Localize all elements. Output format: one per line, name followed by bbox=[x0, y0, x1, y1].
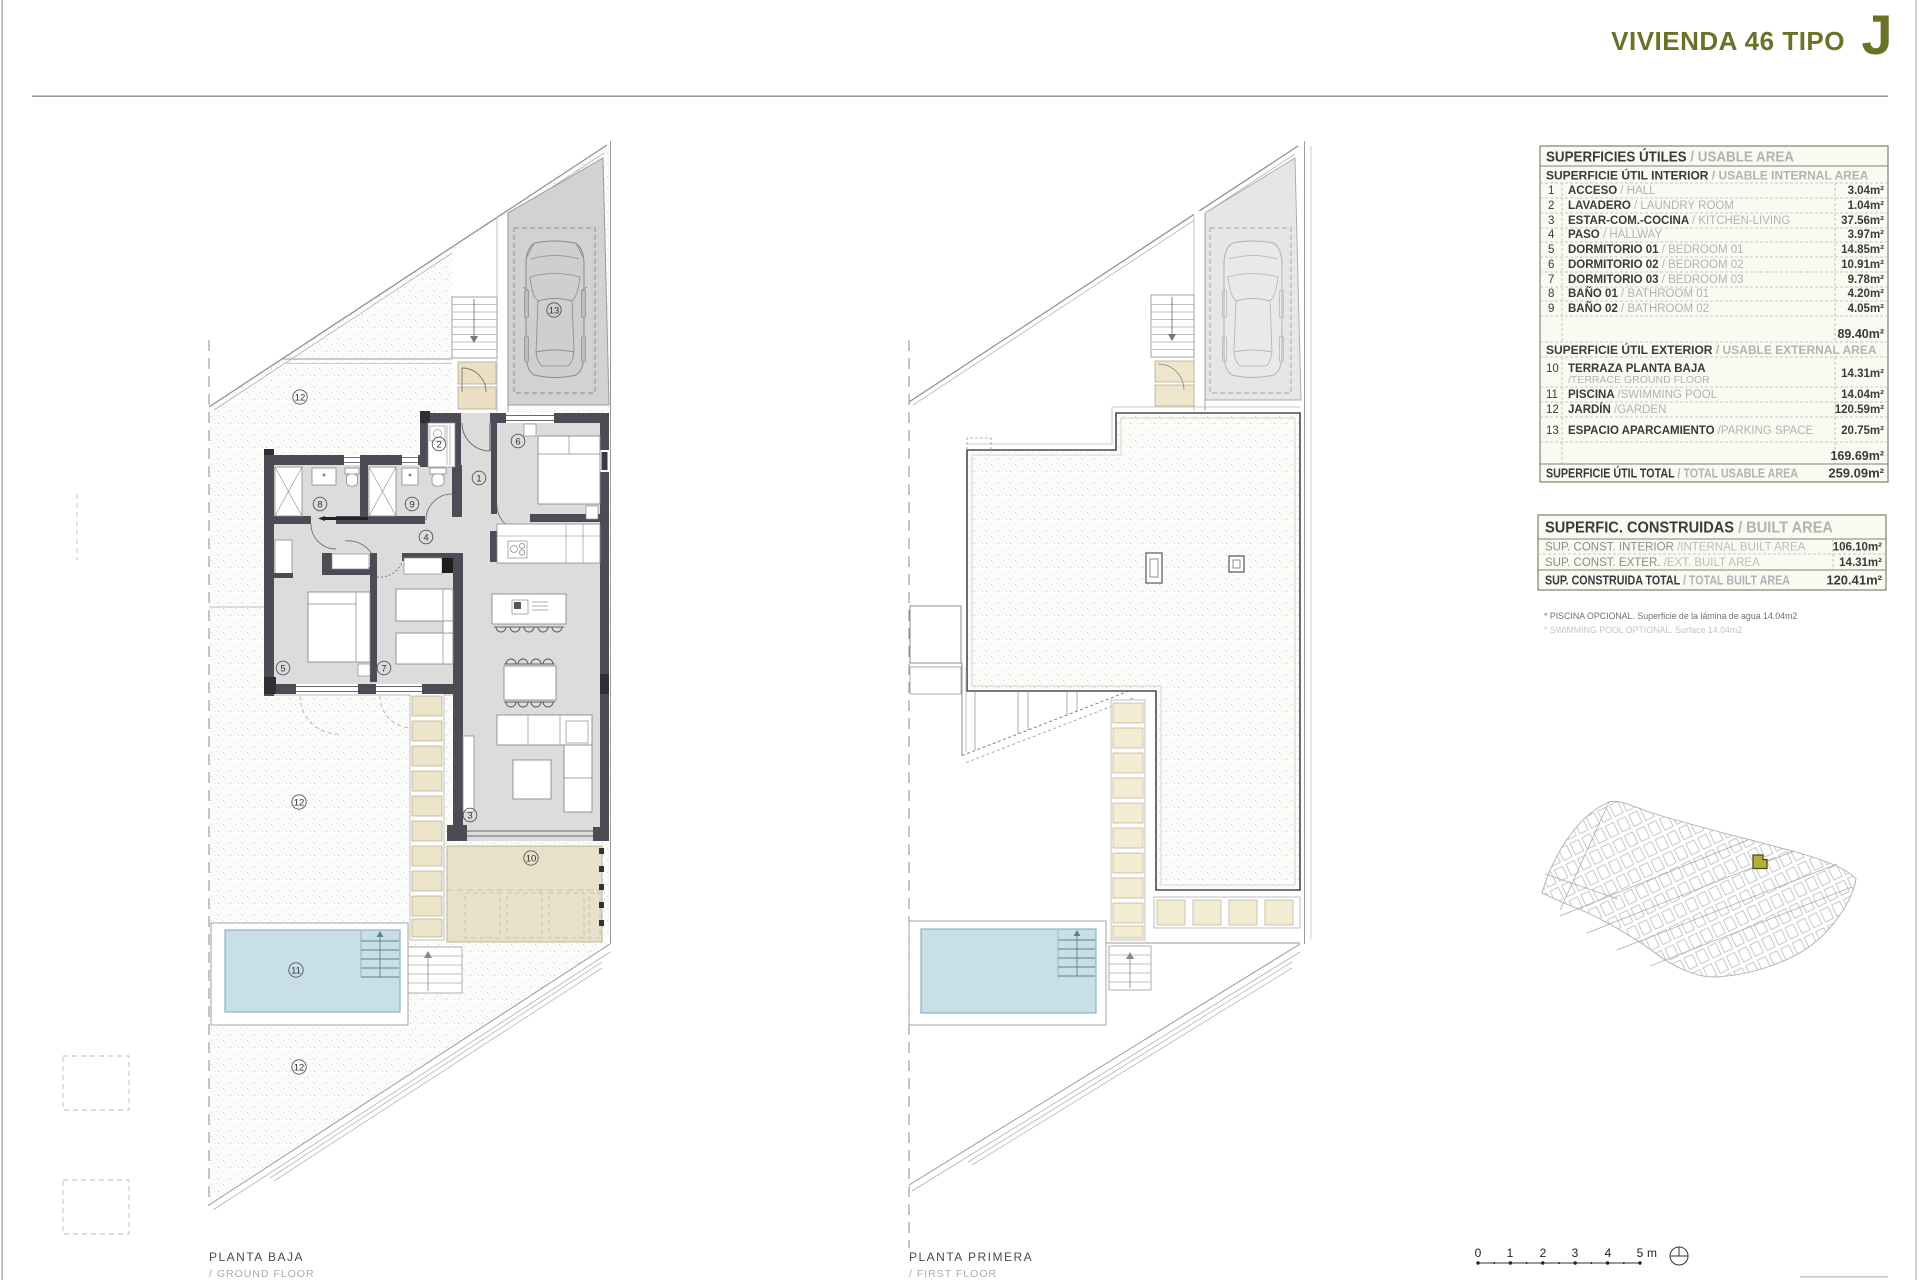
svg-text:12: 12 bbox=[294, 1062, 305, 1073]
svg-text:DORMITORIO 01 / BEDROOM 01: DORMITORIO 01 / BEDROOM 01 bbox=[1568, 244, 1744, 256]
svg-text:14.31m²: 14.31m² bbox=[1839, 557, 1882, 569]
svg-text:259.09m²: 259.09m² bbox=[1828, 466, 1884, 481]
svg-text:SUPERFIC. CONSTRUIDAS / BUILT: SUPERFIC. CONSTRUIDAS / BUILT AREA bbox=[1545, 520, 1833, 537]
svg-text:7: 7 bbox=[381, 663, 386, 674]
svg-text:1: 1 bbox=[1548, 185, 1554, 197]
svg-text:JARDÍN /GARDEN: JARDÍN /GARDEN bbox=[1568, 403, 1666, 416]
svg-text:2: 2 bbox=[436, 439, 441, 450]
svg-text:/TERRACE GROUND FLOOR: /TERRACE GROUND FLOOR bbox=[1568, 374, 1710, 386]
svg-text:120.41m²: 120.41m² bbox=[1826, 573, 1882, 588]
svg-text:4.05m²: 4.05m² bbox=[1848, 303, 1885, 315]
svg-text:3: 3 bbox=[1572, 1246, 1579, 1260]
svg-text:1: 1 bbox=[476, 473, 481, 484]
svg-text:0: 0 bbox=[1475, 1246, 1482, 1260]
svg-text:3.97m²: 3.97m² bbox=[1848, 229, 1885, 241]
svg-text:120.59m²: 120.59m² bbox=[1835, 404, 1884, 416]
svg-text:89.40m²: 89.40m² bbox=[1837, 327, 1884, 341]
svg-text:11: 11 bbox=[291, 965, 301, 976]
svg-text:12: 12 bbox=[294, 797, 305, 808]
svg-text:12: 12 bbox=[295, 392, 306, 403]
svg-text:12: 12 bbox=[1546, 404, 1559, 416]
svg-text:11: 11 bbox=[1546, 389, 1558, 401]
svg-text:ESTAR-COM.-COCINA / KITCHEN-LI: ESTAR-COM.-COCINA / KITCHEN-LIVING bbox=[1568, 215, 1790, 227]
svg-text:14.04m²: 14.04m² bbox=[1841, 389, 1884, 401]
svg-text:10.91m²: 10.91m² bbox=[1841, 259, 1884, 271]
svg-text:14.85m²: 14.85m² bbox=[1841, 244, 1884, 256]
svg-text:BAÑO 02 / BATHROOM 02: BAÑO 02 / BATHROOM 02 bbox=[1568, 302, 1709, 315]
svg-text:LAVADERO / LAUNDRY ROOM: LAVADERO / LAUNDRY ROOM bbox=[1568, 200, 1734, 212]
svg-text:PISCINA /SWIMMING POOL: PISCINA /SWIMMING POOL bbox=[1568, 389, 1718, 401]
svg-text:SUP. CONST. EXTER. /EXT. BUILT: SUP. CONST. EXTER. /EXT. BUILT AREA bbox=[1545, 557, 1760, 569]
svg-text:9: 9 bbox=[409, 499, 414, 510]
svg-text:7: 7 bbox=[1548, 274, 1554, 286]
svg-text:4.20m²: 4.20m² bbox=[1848, 288, 1885, 300]
svg-text:PLANTA PRIMERA: PLANTA PRIMERA bbox=[909, 1250, 1033, 1264]
svg-text:20.75m²: 20.75m² bbox=[1841, 425, 1884, 437]
svg-text:3: 3 bbox=[1548, 215, 1554, 227]
svg-text:/ GROUND FLOOR: / GROUND FLOOR bbox=[209, 1268, 315, 1280]
svg-text:/ FIRST FLOOR: / FIRST FLOOR bbox=[909, 1268, 997, 1280]
svg-text:VIVIENDA 46 TIPO: VIVIENDA 46 TIPO bbox=[1611, 26, 1845, 56]
svg-text:4: 4 bbox=[1605, 1246, 1612, 1260]
svg-text:BAÑO 01 / BATHROOM 01: BAÑO 01 / BATHROOM 01 bbox=[1568, 287, 1709, 300]
svg-text:106.10m²: 106.10m² bbox=[1833, 542, 1882, 554]
svg-text:2: 2 bbox=[1548, 200, 1554, 212]
svg-text:6: 6 bbox=[1548, 259, 1554, 271]
svg-text:3.04m²: 3.04m² bbox=[1848, 185, 1885, 197]
svg-text:1.04m²: 1.04m² bbox=[1848, 200, 1885, 212]
svg-text:SUP. CONSTRUIDA TOTAL / TOTAL: SUP. CONSTRUIDA TOTAL / TOTAL BUILT AREA bbox=[1545, 574, 1790, 588]
svg-text:9.78m²: 9.78m² bbox=[1848, 274, 1885, 286]
svg-text:10: 10 bbox=[526, 853, 537, 864]
svg-text:13: 13 bbox=[1546, 425, 1559, 437]
svg-text:8: 8 bbox=[1548, 288, 1554, 300]
svg-text:14.31m²: 14.31m² bbox=[1841, 368, 1884, 380]
svg-text:9: 9 bbox=[1548, 303, 1554, 315]
svg-text:1: 1 bbox=[1507, 1246, 1514, 1260]
svg-text:J: J bbox=[1861, 3, 1892, 66]
svg-text:4: 4 bbox=[423, 532, 428, 543]
svg-text:3: 3 bbox=[467, 810, 472, 821]
svg-text:PASO / HALLWAY: PASO / HALLWAY bbox=[1568, 229, 1662, 241]
svg-text:6: 6 bbox=[515, 436, 520, 447]
svg-text:SUPERFICIE ÚTIL TOTAL / TOTAL: SUPERFICIE ÚTIL TOTAL / TOTAL USABLE ARE… bbox=[1546, 466, 1798, 481]
svg-text:SUPERFICIE ÚTIL INTERIOR / USA: SUPERFICIE ÚTIL INTERIOR / USABLE INTERN… bbox=[1546, 168, 1869, 183]
svg-text:* PISCINA OPCIONAL. Superficie: * PISCINA OPCIONAL. Superficie de la lám… bbox=[1544, 611, 1797, 621]
svg-text:8: 8 bbox=[317, 499, 322, 510]
svg-text:DORMITORIO 02 / BEDROOM 02: DORMITORIO 02 / BEDROOM 02 bbox=[1568, 259, 1744, 271]
svg-text:ESPACIO APARCAMIENTO /PARKING: ESPACIO APARCAMIENTO /PARKING SPACE bbox=[1568, 425, 1813, 437]
svg-text:m: m bbox=[1647, 1246, 1657, 1260]
svg-text:5: 5 bbox=[1637, 1246, 1644, 1260]
svg-text:DORMITORIO 03 / BEDROOM 03: DORMITORIO 03 / BEDROOM 03 bbox=[1568, 274, 1744, 286]
svg-text:13: 13 bbox=[549, 305, 560, 316]
svg-text:4: 4 bbox=[1548, 229, 1555, 241]
svg-text:SUPERFICIES ÚTILES / USABLE AR: SUPERFICIES ÚTILES / USABLE AREA bbox=[1546, 148, 1794, 166]
svg-text:SUP. CONST. INTERIOR /INTERNAL: SUP. CONST. INTERIOR /INTERNAL BUILT ARE… bbox=[1545, 542, 1806, 554]
svg-text:37.56m²: 37.56m² bbox=[1841, 215, 1884, 227]
svg-text:5: 5 bbox=[280, 663, 285, 674]
svg-text:SUPERFICIE ÚTIL EXTERIOR / USA: SUPERFICIE ÚTIL EXTERIOR / USABLE EXTERN… bbox=[1546, 342, 1877, 357]
svg-text:2: 2 bbox=[1540, 1246, 1547, 1260]
svg-text:* SWIMMING POOL OPTIONAL. Surf: * SWIMMING POOL OPTIONAL. Surface 14.04m… bbox=[1544, 625, 1742, 635]
svg-text:5: 5 bbox=[1548, 244, 1554, 256]
svg-text:PLANTA BAJA: PLANTA BAJA bbox=[209, 1250, 304, 1264]
svg-text:169.69m²: 169.69m² bbox=[1830, 449, 1884, 463]
svg-text:ACCESO / HALL: ACCESO / HALL bbox=[1568, 185, 1656, 197]
svg-text:10: 10 bbox=[1546, 363, 1559, 375]
